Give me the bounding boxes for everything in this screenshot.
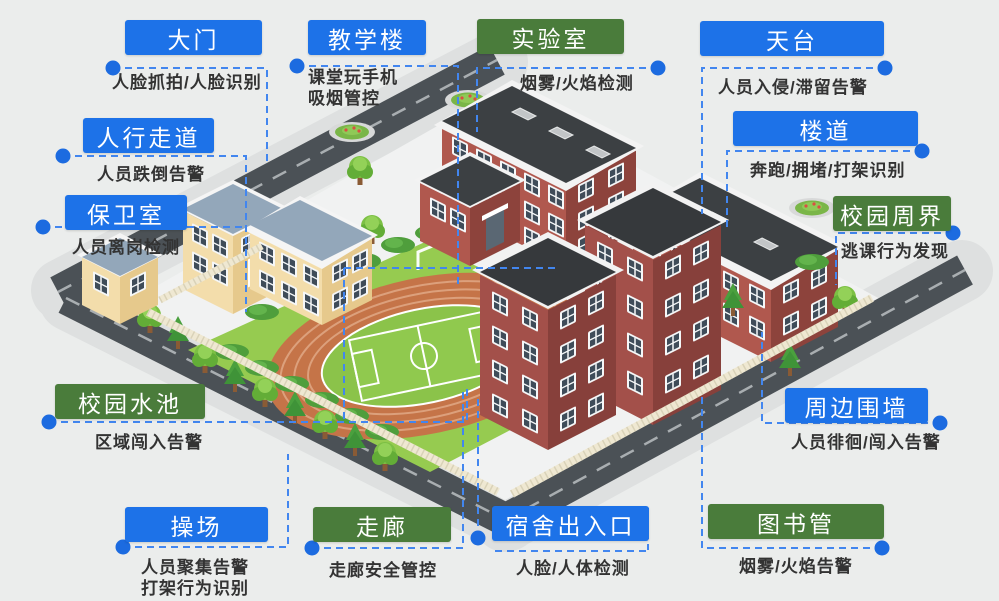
- desc-teaching-building-line1: 课堂玩手机: [308, 67, 398, 88]
- callout-perimeter-wall: 周边围墙 人员徘徊/闯入告警: [785, 388, 928, 423]
- diagram-canvas: 大门 人脸抓拍/人脸识别 教学楼 课堂玩手机 吸烟管控 实验室 烟雾/火焰检测 …: [0, 0, 999, 601]
- label-hallway: 走廊: [313, 507, 451, 542]
- desc-library: 烟雾/火焰告警: [739, 556, 853, 577]
- desc-walkway: 人员跌倒告警: [97, 164, 205, 185]
- label-campus-perimeter: 校园周界: [833, 196, 951, 231]
- label-library: 图书管: [708, 504, 884, 539]
- label-rooftop: 天台: [700, 21, 884, 56]
- callout-laboratory: 实验室 烟雾/火焰检测: [477, 19, 624, 54]
- callout-dorm-entrance: 宿舍出入口 人脸/人体检测: [492, 506, 649, 541]
- callout-hallway: 走廊 走廊安全管控: [313, 507, 451, 542]
- desc-teaching-building-line2: 吸烟管控: [308, 88, 398, 109]
- desc-playground-line2: 打架行为识别: [141, 578, 249, 599]
- callout-walkway: 人行走道 人员跌倒告警: [83, 118, 214, 153]
- desc-rooftop: 人员入侵/滞留告警: [718, 77, 868, 98]
- desc-hallway: 走廊安全管控: [329, 560, 437, 581]
- callout-campus-pool: 校园水池 区域闯入告警: [55, 384, 205, 419]
- label-playground: 操场: [125, 507, 268, 542]
- desc-stair-corridor: 奔跑/拥堵/打架识别: [750, 160, 905, 181]
- desc-teaching-building: 课堂玩手机 吸烟管控: [308, 67, 398, 109]
- callout-guard-room: 保卫室 人员离岗检测: [65, 195, 187, 230]
- label-dorm-entrance: 宿舍出入口: [492, 506, 649, 541]
- label-walkway: 人行走道: [83, 118, 214, 153]
- desc-laboratory: 烟雾/火焰检测: [520, 73, 634, 94]
- label-laboratory: 实验室: [477, 19, 624, 54]
- label-campus-pool: 校园水池: [55, 384, 205, 419]
- desc-guard-room: 人员离岗检测: [72, 237, 180, 258]
- label-gate: 大门: [125, 20, 262, 55]
- callout-library: 图书管 烟雾/火焰告警: [708, 504, 884, 539]
- desc-perimeter-wall: 人员徘徊/闯入告警: [791, 432, 941, 453]
- label-guard-room: 保卫室: [65, 195, 187, 230]
- label-teaching-building: 教学楼: [308, 20, 426, 55]
- callout-teaching-building: 教学楼 课堂玩手机 吸烟管控: [308, 20, 426, 55]
- dormitory-tower-front: [472, 232, 624, 450]
- desc-playground-line1: 人员聚集告警: [141, 557, 249, 578]
- callout-playground: 操场 人员聚集告警 打架行为识别: [125, 507, 268, 542]
- desc-playground: 人员聚集告警 打架行为识别: [141, 557, 249, 599]
- desc-campus-perimeter: 逃课行为发现: [841, 241, 949, 262]
- callout-campus-perimeter: 校园周界 逃课行为发现: [833, 196, 951, 231]
- callout-rooftop: 天台 人员入侵/滞留告警: [700, 21, 884, 56]
- callout-gate: 大门 人脸抓拍/人脸识别: [125, 20, 262, 55]
- callout-stair-corridor: 楼道 奔跑/拥堵/打架识别: [733, 111, 918, 146]
- desc-dorm-entrance: 人脸/人体检测: [516, 558, 630, 579]
- desc-campus-pool: 区域闯入告警: [95, 432, 203, 453]
- desc-gate: 人脸抓拍/人脸识别: [112, 72, 262, 93]
- label-stair-corridor: 楼道: [733, 111, 918, 146]
- label-perimeter-wall: 周边围墙: [785, 388, 928, 423]
